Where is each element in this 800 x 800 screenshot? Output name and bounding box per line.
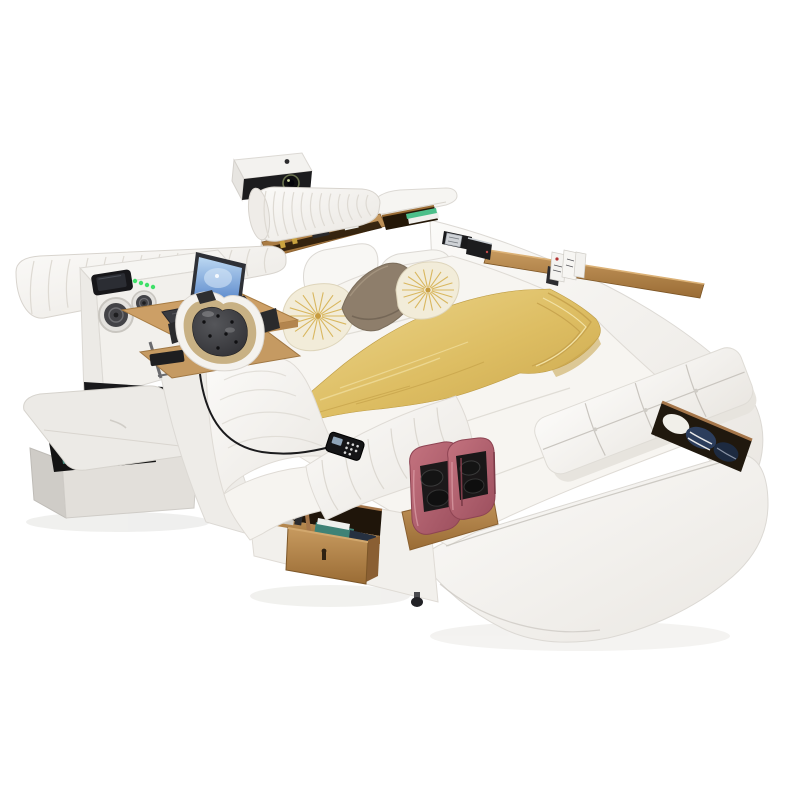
smart-bed-illustration	[0, 0, 800, 800]
speaker-large	[99, 298, 133, 332]
magazines	[550, 250, 586, 282]
product-photo	[0, 0, 800, 800]
